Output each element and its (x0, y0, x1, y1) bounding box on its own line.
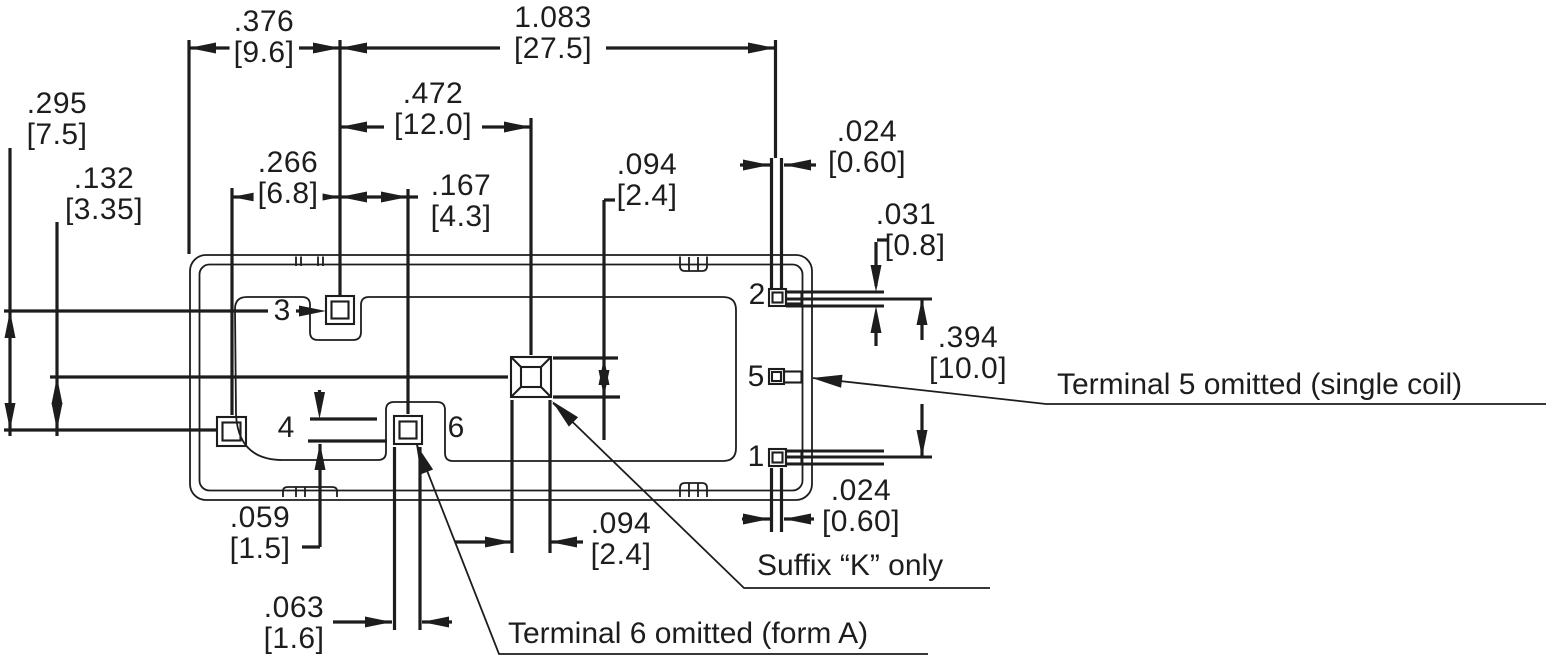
terminal-5-number: 5 (748, 362, 765, 392)
pad-center-suffix-k (511, 357, 551, 397)
pad-terminal-6 (394, 416, 422, 444)
dim-094-top-label: .094[2.4] (617, 149, 678, 211)
note-leader-arrowheads (416, 375, 843, 475)
dim-472-label: .472[12.0] (390, 78, 476, 140)
note-leader-lines (417, 378, 1546, 654)
note-terminal6-omitted: Terminal 6 omitted (form A) (508, 618, 868, 650)
terminal-2-number: 2 (749, 280, 766, 310)
dim-1083-label: 1.083[27.5] (510, 2, 596, 64)
dim-031-label: .031[0.8] (867, 199, 946, 261)
notch-bottom-left (283, 487, 337, 497)
dim-132-label: .132[3.35] (65, 163, 143, 225)
dim-094-bottom-label: .094[2.4] (591, 508, 652, 570)
dim-266-label: .266[6.8] (254, 147, 323, 209)
dim-167-label: .167[4.3] (431, 170, 492, 232)
terminal-6-number: 6 (448, 413, 465, 443)
engineering-drawing: .376[9.6] 1.083[27.5] .472[12.0] .266[6.… (0, 0, 1552, 664)
terminal-leads (786, 292, 932, 464)
terminal-3-number: 3 (274, 296, 291, 326)
dim-063-label: .063[1.6] (264, 592, 325, 654)
pad-terminal-4 (217, 417, 246, 446)
terminal-4-number: 4 (278, 413, 295, 443)
dim-376-label: .376[9.6] (230, 6, 299, 68)
terminal-1-number: 1 (748, 442, 765, 472)
note-suffix-k-only: Suffix “K” only (757, 550, 943, 582)
dim-059-label: .059[1.5] (230, 502, 291, 564)
interior-contour (235, 297, 736, 461)
dim-394-label: .394[10.0] (929, 322, 1007, 384)
dim-024-top-label: .024[0.60] (828, 116, 906, 178)
pad-terminal-5 (769, 369, 802, 384)
pad-terminal-3 (326, 296, 354, 324)
dim-295-label: .295[7.5] (27, 88, 88, 150)
note-terminal5-omitted: Terminal 5 omitted (single coil) (1057, 369, 1462, 401)
dim-024-bottom-label: .024[0.60] (822, 475, 900, 537)
